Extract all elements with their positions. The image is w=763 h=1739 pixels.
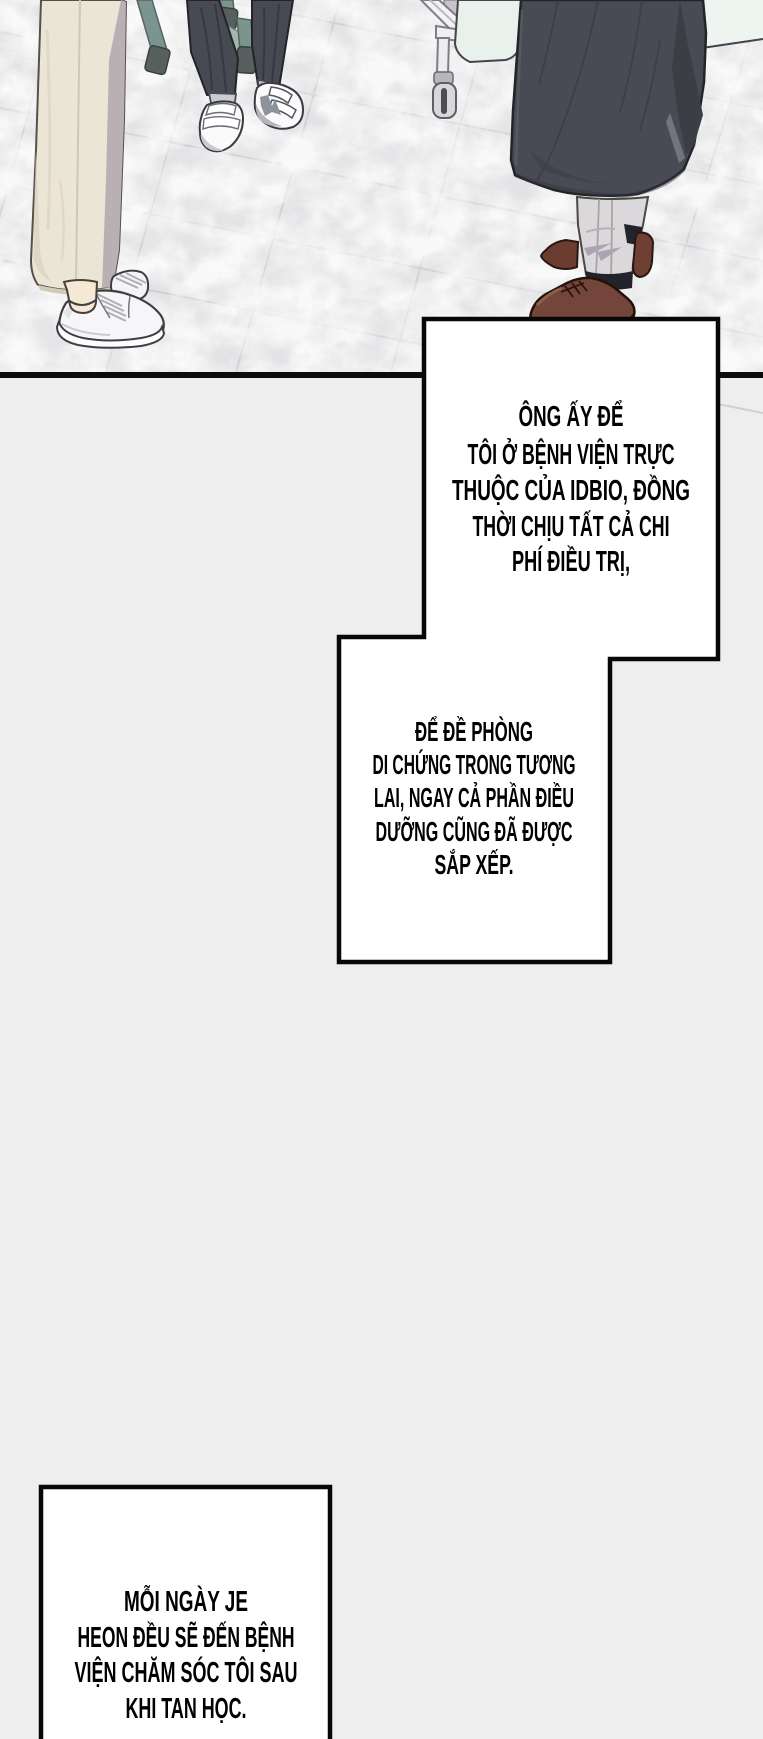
svg-text:HEON ĐỀU SẼ ĐẾN BỆNH: HEON ĐỀU SẼ ĐẾN BỆNH (78, 1620, 295, 1654)
svg-text:VIỆN CHĂM SÓC TÔI SAU: VIỆN CHĂM SÓC TÔI SAU (75, 1655, 298, 1689)
svg-text:ĐỂ ĐỀ PHÒNG: ĐỂ ĐỀ PHÒNG (415, 716, 533, 747)
svg-text:LAI, NGAY CẢ PHẦN ĐIỀU: LAI, NGAY CẢ PHẦN ĐIỀU (374, 781, 574, 813)
svg-text:THUỘC CỦA IDBIO, ĐỒNG: THUỘC CỦA IDBIO, ĐỒNG (452, 473, 690, 507)
svg-text:PHÍ ĐIỀU TRỊ,: PHÍ ĐIỀU TRỊ, (512, 544, 630, 578)
svg-text:KHI TAN HỌC.: KHI TAN HỌC. (126, 1693, 247, 1725)
svg-text:SẮP XẾP.: SẮP XẾP. (435, 849, 514, 880)
svg-text:DI CHỨNG TRONG TƯƠNG: DI CHỨNG TRONG TƯƠNG (373, 749, 576, 780)
svg-text:THỜI CHỊU TẤT CẢ CHI: THỜI CHỊU TẤT CẢ CHI (473, 509, 670, 543)
svg-text:DƯỠNG CŨNG ĐÃ ĐƯỢC: DƯỠNG CŨNG ĐÃ ĐƯỢC (376, 816, 573, 847)
svg-text:ÔNG ẤY ĐỂ: ÔNG ẤY ĐỂ (519, 399, 624, 433)
svg-text:TÔI Ở BỆNH VIỆN TRỰC: TÔI Ở BỆNH VIỆN TRỰC (468, 437, 675, 471)
svg-text:MỖI NGÀY JE: MỖI NGÀY JE (124, 1584, 248, 1618)
